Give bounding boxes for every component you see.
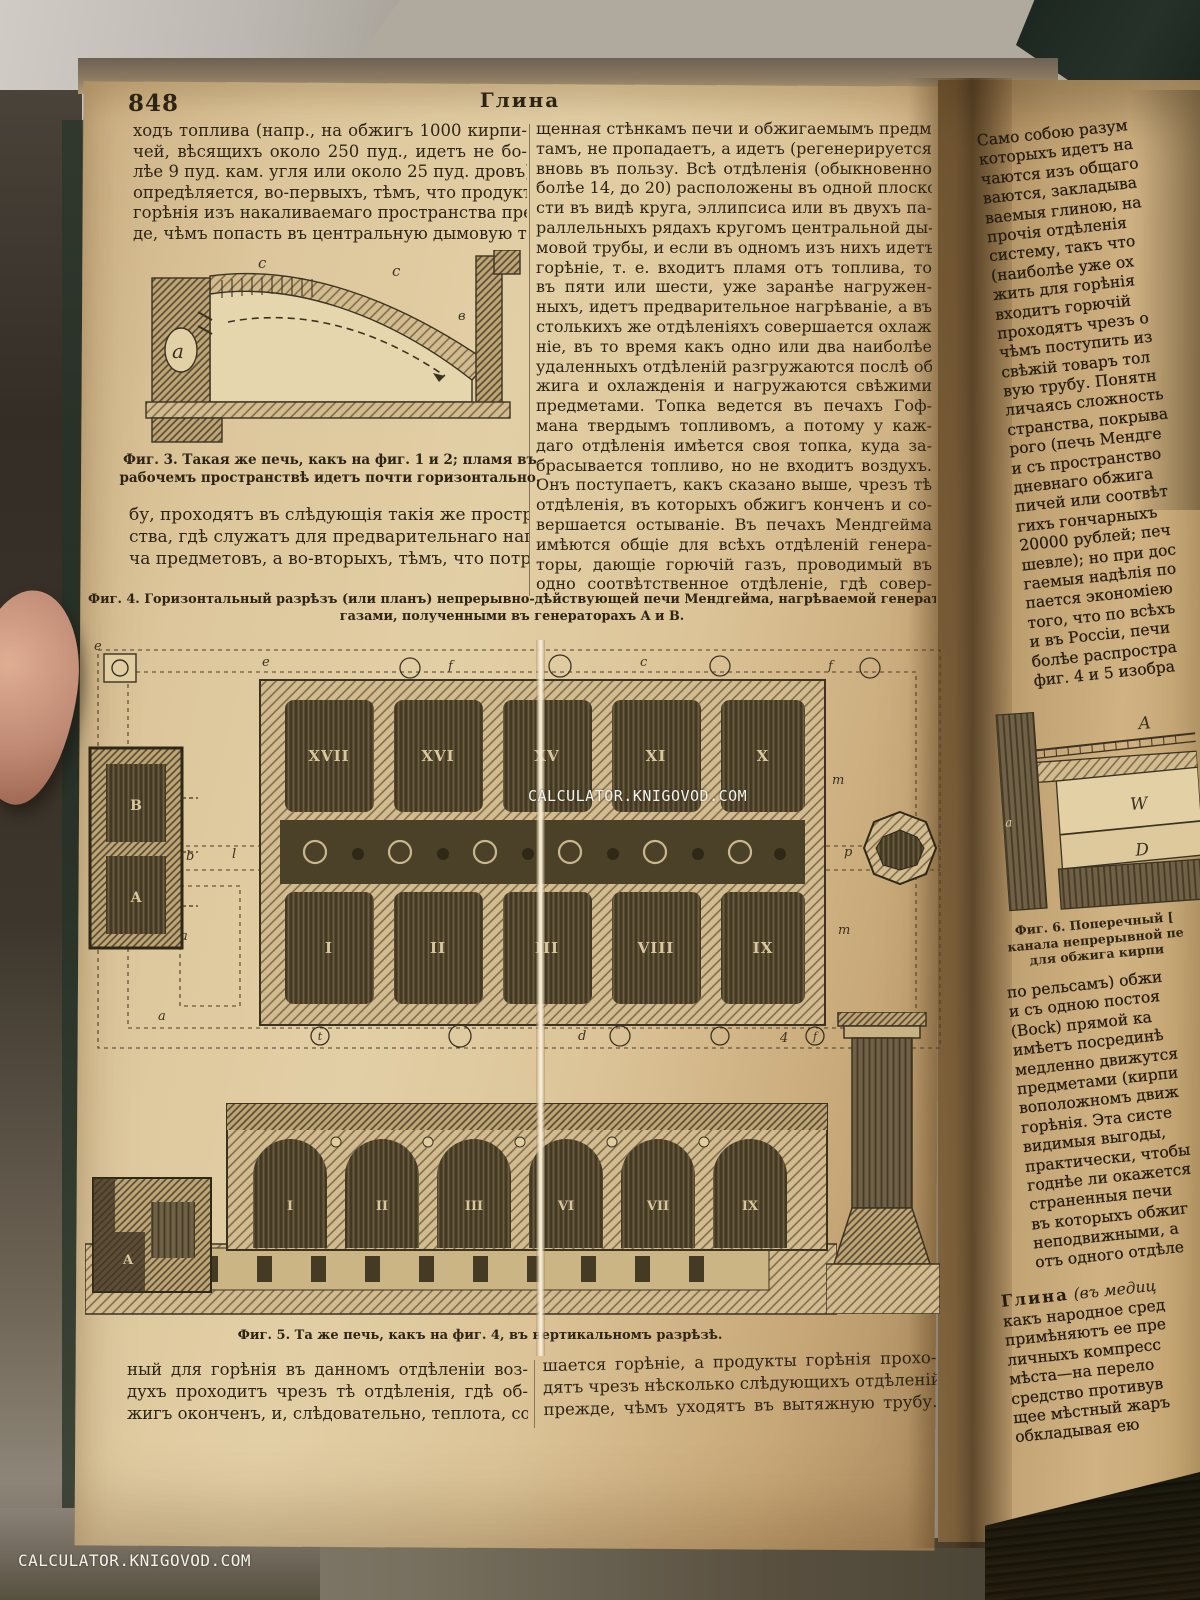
fig5-chimney-drawing	[826, 1012, 940, 1314]
fig5-top-band	[227, 1104, 827, 1130]
left-column-text: ходъ топлива (напр., на обжигъ 1000 кирп…	[133, 121, 527, 245]
fig3-label-c-right: c	[392, 262, 401, 280]
text-line: мовой трубы, и если въ одномъ изъ нихъ и…	[536, 238, 932, 258]
fig4-label-e1: e	[94, 639, 102, 654]
text-line: щенная стѣнкамъ печи и обжигаемымъ предм…	[536, 119, 932, 139]
text-line: рабочемъ пространствѣ идетъ почти горизо…	[112, 470, 548, 488]
fig4-label-f3: f	[812, 1030, 819, 1043]
fig3-label-a: a	[172, 339, 184, 363]
fig6-channel-section-drawing: A W D a	[995, 693, 1200, 914]
fig4-label-m2: m	[838, 923, 850, 938]
bottom-column-divider	[534, 1360, 535, 1428]
fig4-generator-a-label: A	[130, 890, 143, 906]
fig4-chamber-label: XI	[646, 747, 667, 765]
book-photo-scene: 848 Глина ходъ топлива (напр., на обжигъ…	[0, 0, 1200, 1600]
bottom-left-column-text: ный для горѣнія въ данномъ отдѣленіи воз…	[127, 1360, 528, 1426]
text-line: опредѣляется, во-первыхъ, тѣмъ, что прод…	[133, 183, 527, 204]
fig5-caption-line: Фиг. 5. Та же печь, какъ на фиг. 4, въ в…	[190, 1328, 770, 1345]
fig4-generator-b-label: B	[130, 798, 142, 814]
fig4-chimney-octagon	[864, 812, 936, 884]
text-line: тамъ, не пропадаетъ, а идетъ (регенериру…	[536, 139, 932, 159]
fig4-chamber-label: I	[325, 939, 333, 957]
text-line: Онъ поступаетъ, какъ сказано выше, чрезъ…	[536, 475, 932, 495]
fig4-chamber-label: XVI	[421, 747, 454, 765]
text-line: болѣе 14, до 20) расположены въ одной пл…	[536, 178, 932, 198]
text-line: духъ проходитъ чрезъ тѣ отдѣленія, гдѣ о…	[127, 1382, 528, 1404]
fig5-caption: Фиг. 5. Та же печь, какъ на фиг. 4, въ в…	[190, 1328, 770, 1345]
page-number: 848	[128, 90, 179, 117]
text-line: газами, полученными въ генераторахъ A и …	[88, 609, 936, 626]
text-line: Фиг. 3. Такая же печь, какъ на фиг. 1 и …	[112, 452, 548, 470]
fig5-arch-label: III	[465, 1199, 483, 1214]
text-line: горѣніе, т. е. входитъ пламя отъ топлива…	[536, 258, 932, 278]
text-line: ныхъ, идетъ предварительное нагрѣваніе, …	[536, 297, 932, 317]
text-line: ніе, въ то время какъ одно или два наибо…	[536, 337, 932, 357]
fig6-label-D: D	[1134, 840, 1150, 861]
fig4-label-a-bottom: a	[158, 1009, 166, 1024]
text-line: имѣются общіе для всѣхъ отдѣленій генера…	[536, 535, 932, 555]
text-line: раллельныхъ рядахъ кругомъ центральной д…	[536, 218, 932, 238]
fig4-label-l: l	[232, 847, 236, 862]
fig5-arch-label: VII	[646, 1199, 669, 1214]
text-line: бу, проходятъ въ слѣдующія такія же прос…	[129, 505, 529, 527]
fig4-label-m1: m	[832, 773, 844, 788]
page-fold-crease	[536, 640, 545, 1356]
fig6-structure	[1036, 733, 1200, 910]
fig4-label-a-left: a	[180, 929, 188, 944]
fig5-arch-label: VI	[557, 1199, 574, 1214]
text-line: ходъ топлива (напр., на обжигъ 1000 кирп…	[133, 121, 527, 142]
glina-entry: Глина (въ медиц какъ народное средпримѣн…	[1000, 1270, 1200, 1448]
fig4-label-p: p	[844, 845, 853, 860]
fig4-chamber-label: XVII	[308, 747, 349, 765]
fig5-arch-label: IX	[742, 1199, 759, 1214]
text-line: столькихъ же отдѣленіяхъ совершается охл…	[536, 317, 932, 337]
text-line: вновь въ пользу. Всѣ отдѣленія (обыкнове…	[536, 159, 932, 179]
fig3-label-v: в	[458, 309, 466, 324]
fig4-circle-letters: t f	[318, 1030, 819, 1043]
text-line: чей, вѣсящихъ около 250 пуд., идетъ не б…	[133, 142, 527, 163]
text-line: ча предметовъ, а во-вторыхъ, тѣмъ, что п…	[129, 549, 529, 571]
fig3-kiln-section-drawing: c c a в	[140, 250, 522, 448]
text-line: жига и охлажденія и нагружаются свѣжими	[536, 376, 932, 396]
text-line: удаленныхъ отдѣленій разгружаются послѣ …	[536, 357, 932, 377]
fig4-generators: B A	[90, 748, 198, 948]
fig6-label-A: A	[1136, 713, 1152, 734]
middle-column-text: щенная стѣнкамъ печи и обжигаемымъ предм…	[536, 119, 932, 594]
text-line: даго отдѣленія имѣется своя топка, куда …	[536, 436, 932, 456]
fig4-label-d: d	[578, 1029, 586, 1044]
text-line: горѣнія изъ накаливаемаго пространства п…	[133, 203, 527, 224]
fig4-caption: Фиг. 4. Горизонтальный разрѣзъ (или план…	[88, 592, 936, 625]
text-line: торы, дающіе горючій газъ, проводимый въ	[536, 555, 932, 575]
text-line: жигъ оконченъ, и, слѣдовательно, теплота…	[127, 1404, 528, 1426]
fig4-chamber-label: II	[430, 939, 446, 957]
fig4-label-4: 4	[779, 1031, 788, 1046]
column-divider	[529, 124, 530, 596]
fig4-chamber-label: VIII	[637, 939, 675, 957]
fig6-label-W: W	[1129, 794, 1149, 815]
fig5-generator-label: A	[122, 1253, 134, 1268]
fig4-label-c: c	[640, 655, 648, 670]
bottom-middle-column-text: шается горѣніе, а продукты горѣнія прохо…	[542, 1348, 937, 1422]
fig6-label-a: a	[1005, 815, 1013, 829]
fig3-label-c-left: c	[258, 254, 267, 272]
text-line: сти въ видѣ круга, эллипсиса или въ двух…	[536, 198, 932, 218]
text-line: въ пяти или шести, уже заранѣе нагружен-	[536, 277, 932, 297]
text-line: отдѣленія, въ которыхъ обжигъ конченъ и …	[536, 495, 932, 515]
page-header: Глина	[330, 88, 710, 112]
text-line: ный для горѣнія въ данномъ отдѣленіи воз…	[127, 1360, 528, 1382]
fig5-arch-label: II	[376, 1199, 388, 1214]
fig3-structure	[146, 250, 520, 442]
text-line: мана твердымъ топливомъ, а потому у каж-	[536, 416, 932, 436]
fig4-label-f1: f	[447, 659, 455, 674]
text-line: лѣе 9 пуд. кам. угля или около 25 пуд. д…	[133, 162, 527, 183]
fig5-kiln-section-drawing: I II III VI VII IX A	[85, 1082, 837, 1322]
text-line: ства, гдѣ служатъ для предварительнаго н…	[129, 527, 529, 549]
left-column-continued: бу, проходятъ въ слѣдующія такія же прос…	[129, 505, 529, 571]
text-line: вершается остываніе. Въ печахъ Мендгейма	[536, 515, 932, 535]
fig4-chamber-label: IX	[753, 939, 774, 957]
fig4-label-t: t	[318, 1030, 323, 1043]
fig3-caption: Фиг. 3. Такая же печь, какъ на фиг. 1 и …	[112, 452, 548, 487]
text-line: предметами. Топка ведется въ печахъ Гоф-	[536, 396, 932, 416]
glina-entry-text: какъ народное средпримѣняютъ ее преличны…	[1002, 1290, 1200, 1447]
fig4-corner-mark	[104, 654, 136, 682]
fig4-kiln-plan-drawing: XVII XVI XV XI X I II III VIII IX B A	[80, 638, 958, 1066]
right-page-mid-text: по рельсамъ) обжии съ одною постоя(Bock)…	[1006, 962, 1200, 1273]
fig5-left-generator: A	[93, 1178, 211, 1292]
fig5-chimney	[826, 1012, 940, 1314]
text-line: де, чѣмъ попасть въ центральную дымовую …	[133, 224, 527, 245]
fig5-arch-label: I	[287, 1199, 293, 1214]
fig4-chamber-label: X	[757, 747, 770, 765]
fig4-label-e2: e	[262, 655, 270, 670]
watermark-center: CALCULATOR.KNIGOVOD.COM	[528, 787, 747, 805]
watermark-bottom-left: CALCULATOR.KNIGOVOD.COM	[18, 1551, 251, 1570]
text-line: брасывается топливо, но не входитъ возду…	[536, 456, 932, 476]
fig4-label-b: b	[186, 849, 194, 864]
text-line: Фиг. 4. Горизонтальный разрѣзъ (или план…	[88, 592, 936, 609]
